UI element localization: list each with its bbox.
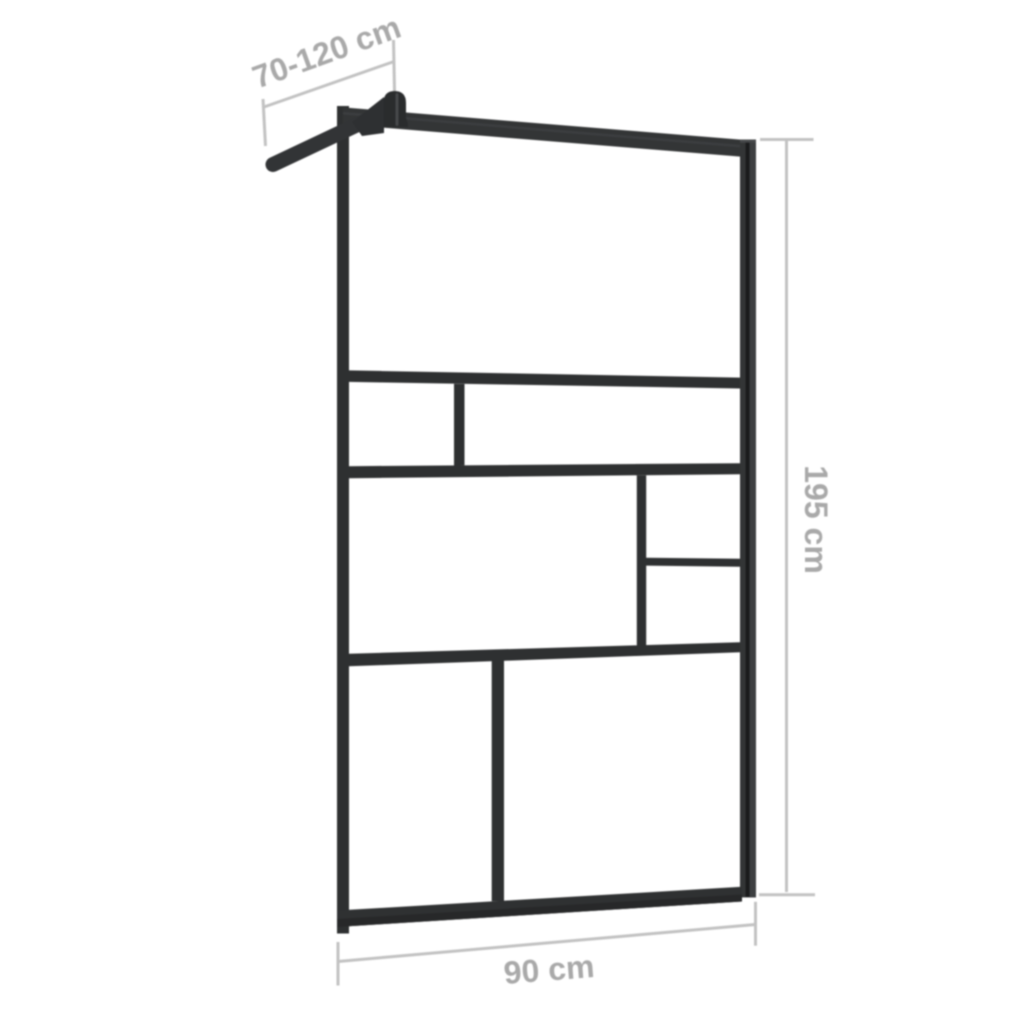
svg-text:195 cm: 195 cm — [798, 465, 834, 574]
svg-text:90 cm: 90 cm — [502, 948, 595, 991]
svg-text:70-120 cm: 70-120 cm — [248, 9, 406, 96]
